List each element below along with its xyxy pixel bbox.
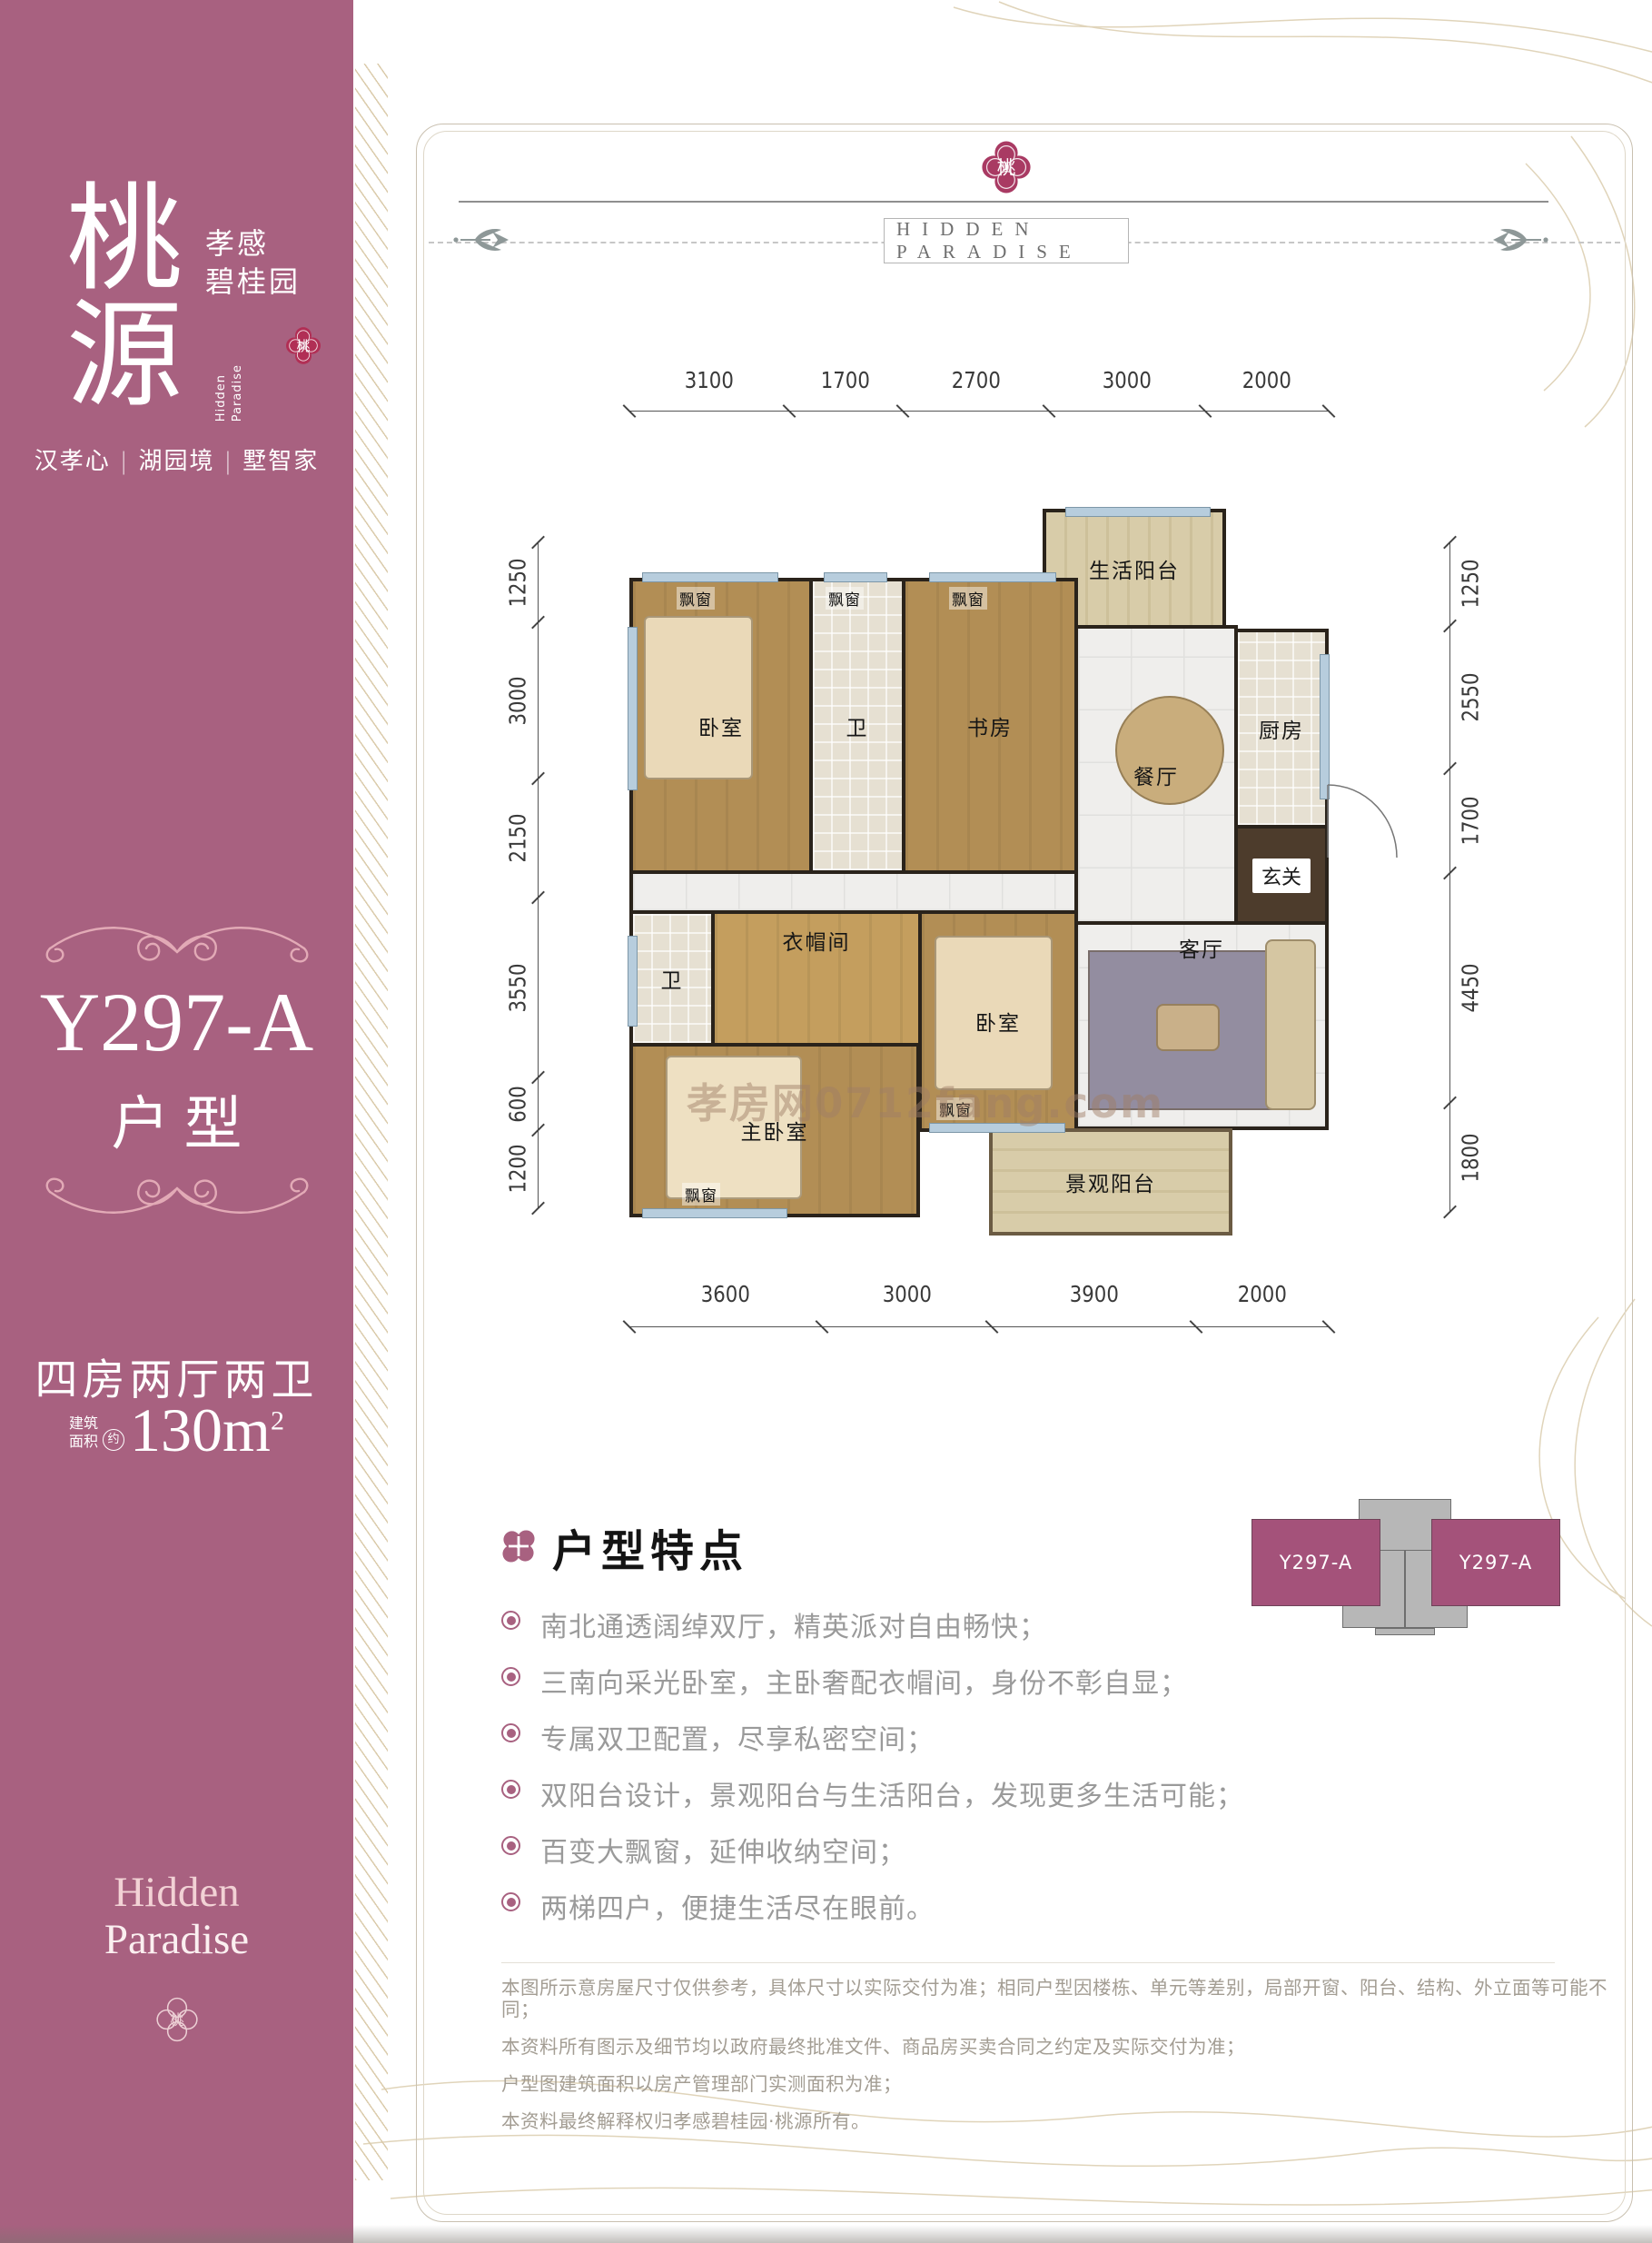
dimension-segment: 3100 xyxy=(629,367,789,411)
area-prefix: 建筑 面积 xyxy=(69,1414,98,1451)
tagline-part-3: 墅智家 xyxy=(242,448,319,475)
dimension-segment: 4450 xyxy=(1450,873,1490,1103)
room-bath-1: 卫 xyxy=(809,578,905,874)
dimension-segment: 1700 xyxy=(789,367,903,411)
dimension-value: 3900 xyxy=(1070,1281,1119,1307)
dimension-segment: 1800 xyxy=(1450,1103,1490,1212)
room-label: 卫 xyxy=(661,963,684,994)
brochure-page: 桃 源 孝感 碧桂园 Hidden Paradise 桃 xyxy=(0,0,1652,2243)
bullet-ring-icon xyxy=(501,1892,520,1911)
window-strip xyxy=(824,572,887,582)
disclaimer-line: 本图所示意房屋尺寸仅供参考，具体尺寸以实际交付为准；相同户型因楼栋、单元等差别，… xyxy=(501,1977,1637,2020)
unit-type-label: 户型 xyxy=(0,1077,353,1161)
dimension-segment: 2700 xyxy=(903,367,1049,411)
room-label: 衣帽间 xyxy=(783,925,851,956)
dimensions-top: 31001700270030002000 xyxy=(629,367,1329,412)
room-label: 生活阳台 xyxy=(1089,553,1180,584)
room-study: 书房 xyxy=(902,578,1078,874)
bay-window-label: 飘窗 xyxy=(677,587,715,610)
dimension-value: 2550 xyxy=(1458,673,1484,722)
features-title: 户型特点 xyxy=(552,1515,748,1579)
area-number: 130m xyxy=(130,1395,271,1464)
disclaimer-rule xyxy=(501,1962,1555,1963)
dimension-segment: 3000 xyxy=(1049,367,1205,411)
dimension-segment: 3550 xyxy=(498,898,538,1077)
dimension-segment: 1250 xyxy=(1450,542,1490,626)
keyplan-unit-label: Y297-A xyxy=(1459,1552,1532,1573)
dimension-value: 600 xyxy=(505,1086,531,1123)
area-row: 建筑 面积 约 130m2 xyxy=(0,1401,353,1460)
dimension-value: 3100 xyxy=(685,367,734,393)
header-seal-icon: 桃 xyxy=(981,140,1032,194)
dimensions-right: 12502550170044501800 xyxy=(1449,542,1490,1212)
bay-window-label: 飘窗 xyxy=(949,587,987,610)
window-strip xyxy=(929,572,1056,582)
tagline-separator: | xyxy=(224,448,234,475)
room-label: 书房 xyxy=(967,710,1013,741)
window-strip xyxy=(628,627,638,790)
entry-door-arc xyxy=(1324,781,1400,861)
footer-brand-en: Hidden Paradise xyxy=(0,1870,353,1963)
room-label: 厨房 xyxy=(1259,713,1304,744)
window-strip xyxy=(642,572,778,582)
flourish-ornament-bottom xyxy=(31,1161,323,1226)
dimension-value: 2000 xyxy=(1238,1281,1287,1307)
dimension-segment: 2150 xyxy=(498,779,538,898)
disclaimer-line: 本资料最终解释权归孝感碧桂园·桃源所有。 xyxy=(501,2110,1637,2132)
area-value: 130m2 xyxy=(130,1401,284,1460)
header-title-box: HIDDEN PARADISE xyxy=(884,218,1129,263)
dimension-value: 2000 xyxy=(1242,367,1291,393)
brand-en-row: Hidden Paradise 桃 xyxy=(205,315,301,424)
dimension-value: 1250 xyxy=(1458,560,1484,609)
tagline-part-1: 汉孝心 xyxy=(35,448,111,475)
flourish-ornament-top xyxy=(31,914,323,979)
brand-tagline: 汉孝心|湖园境|墅智家 xyxy=(0,442,353,476)
bullet-ring-icon xyxy=(501,1780,520,1799)
dimension-segment: 1700 xyxy=(1450,769,1490,873)
footer-line2: Paradise xyxy=(0,1917,353,1964)
dimension-value: 3600 xyxy=(701,1281,750,1307)
page-bottom-shade xyxy=(0,2225,1652,2243)
keyplan-unit-label: Y297-A xyxy=(1280,1552,1352,1573)
brand-seal-icon: 桃 xyxy=(285,326,321,365)
feature-item: 双阳台设计，景观阳台与生活阳台，发现更多生活可能； xyxy=(501,1773,1573,1830)
dimension-value: 1200 xyxy=(505,1145,531,1194)
room-hallway xyxy=(629,870,1078,914)
brand-en-vertical: Hidden Paradise xyxy=(213,322,246,422)
brand-logo: 桃 源 孝感 碧桂园 Hidden Paradise 桃 xyxy=(56,182,301,424)
area-exponent: 2 xyxy=(271,1405,284,1435)
dimension-segment: 3600 xyxy=(629,1281,822,1326)
area-approx-badge: 约 xyxy=(103,1429,124,1451)
bay-window-label: 飘窗 xyxy=(682,1183,720,1206)
svg-text:桃: 桃 xyxy=(297,339,311,354)
dimension-segment: 2000 xyxy=(1196,1281,1329,1326)
dimension-segment: 1200 xyxy=(498,1130,538,1208)
header-rule xyxy=(459,201,1548,203)
footer-seal-icon: 桃 xyxy=(156,1997,198,2042)
dimension-value: 4450 xyxy=(1458,964,1484,1013)
room-label: 卫 xyxy=(846,710,869,741)
disclaimer-line: 户型图建筑面积以房产管理部门实测面积为准； xyxy=(501,2073,1637,2095)
bullet-ring-icon xyxy=(501,1667,520,1686)
feature-text: 南北通透阔绰双厅，精英派对自由畅快； xyxy=(540,1604,1047,1644)
dimension-segment: 600 xyxy=(498,1077,538,1130)
brand-char-1: 桃 xyxy=(56,182,193,298)
features-list: 南北通透阔绰双厅，精英派对自由畅快； 三南向采光卧室，主卧奢配衣帽间，身份不彰自… xyxy=(501,1604,1573,1942)
area-prefix-line2: 面积 xyxy=(69,1433,98,1451)
disclaimer: 本图所示意房屋尺寸仅供参考，具体尺寸以实际交付为准；相同户型因楼栋、单元等差别，… xyxy=(501,1977,1637,2148)
feature-text: 专属双卫配置，尽享私密空间； xyxy=(540,1717,935,1757)
dimension-value: 3000 xyxy=(883,1281,932,1307)
flower-icon xyxy=(500,1526,538,1566)
room-label: 景观阳台 xyxy=(1065,1166,1156,1197)
feature-item: 南北通透阔绰双厅，精英派对自由畅快； xyxy=(501,1604,1573,1661)
sofa-shape xyxy=(1265,939,1316,1110)
arrow-ornament-right-icon xyxy=(1489,222,1549,258)
brand-developer-line: 碧桂园 xyxy=(205,263,301,302)
feature-text: 双阳台设计，景观阳台与生活阳台，发现更多生活可能； xyxy=(540,1773,1244,1813)
dimensions-left: 12503000215035506001200 xyxy=(498,542,539,1208)
keyplan-unit-left: Y297-A xyxy=(1251,1519,1380,1606)
brand-char-2: 源 xyxy=(56,298,193,414)
dimension-value: 2700 xyxy=(951,367,1000,393)
feature-item: 两梯四户，便捷生活尽在眼前。 xyxy=(501,1886,1573,1942)
room-kitchen: 厨房 xyxy=(1234,629,1329,829)
room-foyer: 玄关 xyxy=(1234,825,1329,927)
brand-sub-block: 孝感 碧桂园 Hidden Paradise 桃 xyxy=(205,182,301,424)
window-strip xyxy=(1320,654,1330,799)
coffee-table-shape xyxy=(1156,1004,1220,1051)
dimensions-bottom: 3600300039002000 xyxy=(629,1281,1329,1327)
bullet-ring-icon xyxy=(501,1611,520,1630)
dimension-value: 1250 xyxy=(505,558,531,607)
dimension-segment: 3000 xyxy=(498,622,538,779)
tagline-separator: | xyxy=(120,448,130,475)
room-label: 卧室 xyxy=(975,1006,1021,1037)
window-strip xyxy=(1065,507,1211,517)
dimension-value: 2150 xyxy=(505,814,531,863)
watermark: 孝房网0712fang.com xyxy=(687,1070,1164,1129)
bullet-ring-icon xyxy=(501,1836,520,1855)
dimension-segment: 2550 xyxy=(1450,626,1490,769)
dimension-segment: 3900 xyxy=(992,1281,1195,1326)
brand-logo-cn: 桃 源 xyxy=(56,182,193,424)
room-scenic-balcony: 景观阳台 xyxy=(989,1128,1232,1236)
unit-code: Y297-A xyxy=(0,974,353,1070)
feature-item: 专属双卫配置，尽享私密空间； xyxy=(501,1717,1573,1773)
feature-text: 两梯四户，便捷生活尽在眼前。 xyxy=(540,1886,935,1926)
dimension-value: 3550 xyxy=(505,963,531,1012)
room-label: 客厅 xyxy=(1179,932,1224,963)
hatch-band-decoration xyxy=(355,64,388,2180)
bed-shape xyxy=(644,616,753,779)
feature-item: 三南向采光卧室，主卧奢配衣帽间，身份不彰自显； xyxy=(501,1661,1573,1717)
arrow-ornament-left-icon xyxy=(452,222,512,258)
dimension-value: 3000 xyxy=(505,676,531,725)
feature-item: 百变大飘窗，延伸收纳空间； xyxy=(501,1830,1573,1886)
keyplan-unit-right: Y297-A xyxy=(1431,1519,1560,1606)
dimension-value: 1700 xyxy=(821,367,870,393)
brand-city-line: 孝感 xyxy=(205,225,301,263)
svg-text:桃: 桃 xyxy=(170,2012,183,2028)
dimension-segment: 1250 xyxy=(498,542,538,622)
bullet-ring-icon xyxy=(501,1723,520,1742)
window-strip xyxy=(642,1208,787,1218)
area-prefix-line1: 建筑 xyxy=(69,1414,98,1433)
footer-line1: Hidden xyxy=(0,1870,353,1917)
window-strip xyxy=(628,936,638,1027)
bay-window-label: 飘窗 xyxy=(826,587,864,610)
disclaimer-line: 本资料所有图示及细节均以政府最终批准文件、商品房买卖合同之约定及实际交付为准； xyxy=(501,2036,1637,2058)
room-label: 餐厅 xyxy=(1133,759,1179,790)
room-bath-2: 卫 xyxy=(629,910,715,1047)
dimension-value: 3000 xyxy=(1103,367,1152,393)
feature-text: 百变大飘窗，延伸收纳空间； xyxy=(540,1830,906,1870)
room-label: 卧室 xyxy=(698,710,744,741)
dimension-value: 1800 xyxy=(1458,1133,1484,1182)
room-label: 玄关 xyxy=(1252,858,1311,893)
dimension-segment: 2000 xyxy=(1205,367,1329,411)
sidebar: 桃 源 孝感 碧桂园 Hidden Paradise 桃 xyxy=(0,0,353,2243)
svg-text:桃: 桃 xyxy=(997,157,1016,178)
dimension-value: 1700 xyxy=(1458,797,1484,846)
room-closet: 衣帽间 xyxy=(711,910,922,1047)
feature-text: 三南向采光卧室，主卧奢配衣帽间，身份不彰自显； xyxy=(540,1661,1188,1701)
dimension-segment: 3000 xyxy=(822,1281,992,1326)
tagline-part-2: 湖园境 xyxy=(138,448,214,475)
